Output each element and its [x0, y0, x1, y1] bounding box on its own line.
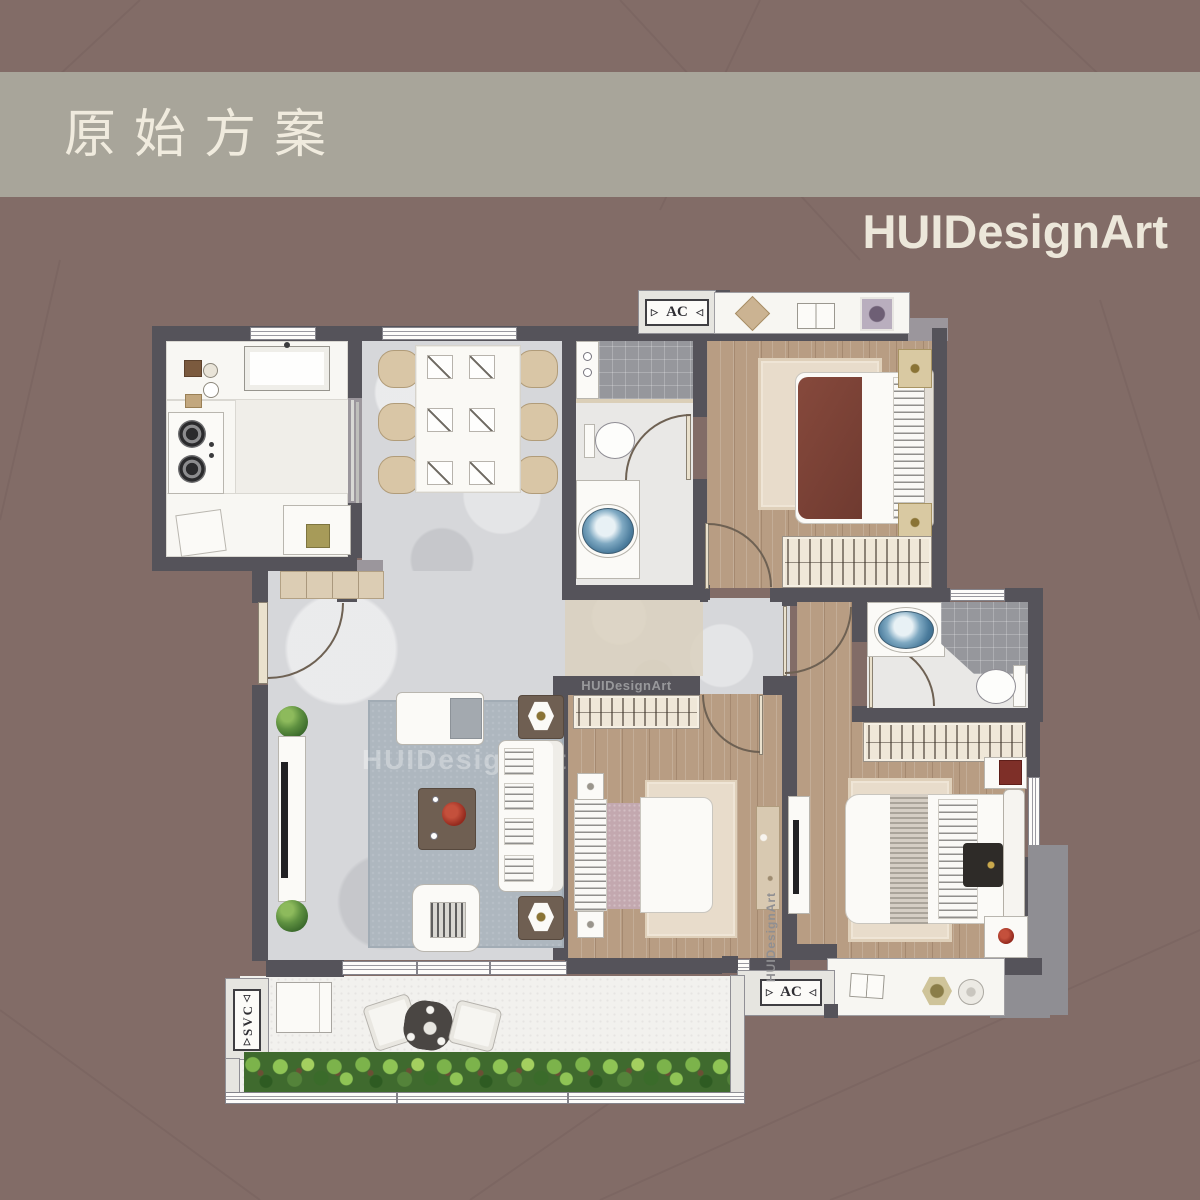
- ac-label-top: ▷ AC ◁: [645, 299, 709, 326]
- entry-door-leaf: [258, 602, 268, 684]
- stove-knob: [209, 453, 214, 458]
- hallway-threshold: [565, 600, 703, 676]
- place-setting: [469, 408, 495, 432]
- kitchen-jar: [203, 363, 218, 378]
- wall-master-right-top: [1025, 722, 1040, 777]
- wall-middle-bottom-left: [565, 958, 722, 974]
- ac-arrow-left-icon: ◁: [696, 308, 703, 317]
- kitchen-window: [250, 327, 316, 340]
- place-setting: [427, 408, 453, 432]
- washing-machine: [276, 982, 332, 1033]
- balcony-hedge: [244, 1052, 730, 1094]
- wall-kitchen-right-top: [348, 341, 362, 398]
- plant: [276, 706, 308, 738]
- stove-burner: [178, 455, 206, 483]
- place-setting: [469, 461, 495, 485]
- wall-bath1-bedroom1-top: [693, 341, 707, 417]
- watermark-vertical: HUIDesignArt: [762, 878, 782, 982]
- coffee-cup: [430, 832, 438, 840]
- wall-bath2-bottom: [852, 708, 1043, 722]
- laundry-knob: [583, 368, 592, 377]
- ac-label-bottom: ▷ AC ◁: [760, 979, 822, 1006]
- bathroom2-sink: [878, 611, 934, 649]
- shower-glass-line: [576, 399, 693, 403]
- ac-post-bottom-left: [722, 956, 738, 973]
- dining-chair: [378, 403, 420, 441]
- wall-living-bottom: [266, 960, 344, 977]
- wall-bath2-right: [1028, 588, 1043, 722]
- place-setting: [427, 355, 453, 379]
- middle-bedroom-wardrobe: [573, 695, 700, 729]
- ac-label-text: AC: [666, 305, 688, 320]
- wall-kitchen-bottom: [152, 557, 352, 571]
- ac-arrow-right-icon: ▷: [766, 988, 773, 997]
- kitchen-sink: [244, 346, 330, 391]
- bathroom1-shower: [599, 341, 693, 399]
- master-bed-runner: [890, 794, 928, 924]
- kitchen-slider-line: [351, 400, 354, 501]
- bathroom2-window: [950, 589, 1005, 601]
- bathroom1-sink: [582, 508, 634, 554]
- toilet2-bowl: [976, 669, 1016, 704]
- balcony-frame-right: [730, 975, 745, 1093]
- bedroom1-nightstand: [898, 349, 932, 388]
- place-setting: [469, 355, 495, 379]
- bay-book: [797, 303, 835, 329]
- bay-round-plate: [958, 979, 984, 1005]
- dining-chair: [378, 456, 420, 494]
- dining-chair: [516, 403, 558, 441]
- kitchen-basket: [185, 394, 202, 408]
- kitchen-dishwasher: [175, 509, 226, 557]
- master-flowers: [998, 928, 1014, 944]
- middle-nightstand: [577, 911, 604, 938]
- place-setting: [427, 461, 453, 485]
- wall-living-left: [252, 685, 268, 961]
- toilet1-tank: [584, 424, 595, 458]
- page-title: 原始方案: [64, 100, 664, 170]
- kitchen-slider-line: [356, 402, 359, 503]
- stove-burner: [178, 420, 206, 448]
- master-tv-panel: [788, 796, 810, 914]
- svc-label: ▽ SVC △: [233, 989, 261, 1051]
- bedroom1-blanket: [798, 377, 862, 519]
- ac-post-bottom-right: [824, 1004, 838, 1018]
- ac-arrow-left-icon: ◁: [809, 988, 816, 997]
- wall-living-left-top: [252, 571, 268, 603]
- svc-label-text: SVC: [241, 1004, 254, 1036]
- middle-bedroom-top-wall: HUIDesignArt: [553, 676, 700, 695]
- bedroom1-wardrobe: [782, 536, 932, 588]
- master-tv: [793, 820, 799, 894]
- toilet1-bowl: [595, 422, 635, 459]
- dining-window: [382, 327, 517, 340]
- coffee-cup: [432, 796, 439, 803]
- dining-chair: [378, 350, 420, 388]
- master-wardrobe: [863, 722, 1026, 762]
- wall-dining-bath1: [562, 341, 576, 598]
- living-tv: [281, 762, 288, 878]
- svc-arrow-up-icon: △: [244, 1037, 251, 1046]
- bay-book-2: [849, 973, 885, 999]
- master-cabinet-red-box: [999, 760, 1022, 785]
- bench-pillow: [450, 698, 482, 739]
- armchair-cushion: [430, 902, 466, 938]
- plant: [276, 900, 308, 932]
- bay-cushion: [860, 297, 894, 331]
- svc-arrow-down-icon: ▽: [244, 994, 251, 1003]
- kitchen-cutting-board: [184, 360, 202, 377]
- balcony-window-bottom: [225, 1092, 745, 1104]
- bedroom1-pillows: [893, 377, 927, 519]
- watermark-closet-bar: HUIDesignArt: [581, 678, 672, 693]
- sofa-pillow: [504, 783, 534, 810]
- ac-arrow-right-icon: ▷: [651, 308, 658, 317]
- middle-bed-duvet: [640, 797, 713, 913]
- wall-hall-top: [562, 585, 710, 600]
- ac-label-text: AC: [780, 985, 802, 1000]
- middle-nightstand: [577, 773, 604, 800]
- wall-bedroom1-bottom-left: [700, 588, 708, 602]
- entry-shoe-cabinet: [280, 571, 384, 599]
- sofa-pillow: [504, 748, 534, 775]
- middle-bed-pink-throw: [607, 803, 643, 909]
- middle-bed-headboard: [574, 799, 607, 911]
- brand-logo-text: HUIDesignArt: [668, 204, 1168, 264]
- laundry-knob: [583, 352, 592, 361]
- coffee-table-flowers: [442, 802, 466, 826]
- living-balcony-slider: [342, 961, 567, 975]
- floor-plan-poster: 原始方案 HUIDesignArt HUIDesignArt: [0, 0, 1200, 1200]
- wall-right-bedroom1: [932, 328, 947, 592]
- wall-bath2-left-top: [852, 588, 867, 642]
- wall-left-kitchen: [152, 326, 166, 571]
- sofa-pillow: [504, 855, 534, 882]
- kitchen-bowl: [203, 382, 219, 398]
- kitchen-faucet: [284, 342, 290, 348]
- kitchen-stool: [306, 524, 330, 548]
- sofa-pillow: [504, 818, 534, 845]
- stove-knob: [209, 442, 214, 447]
- dining-chair: [516, 350, 558, 388]
- master-headboard: [1003, 789, 1025, 929]
- wall-master-stub: [782, 598, 797, 606]
- master-bed-tray: [963, 843, 1003, 887]
- dining-chair: [516, 456, 558, 494]
